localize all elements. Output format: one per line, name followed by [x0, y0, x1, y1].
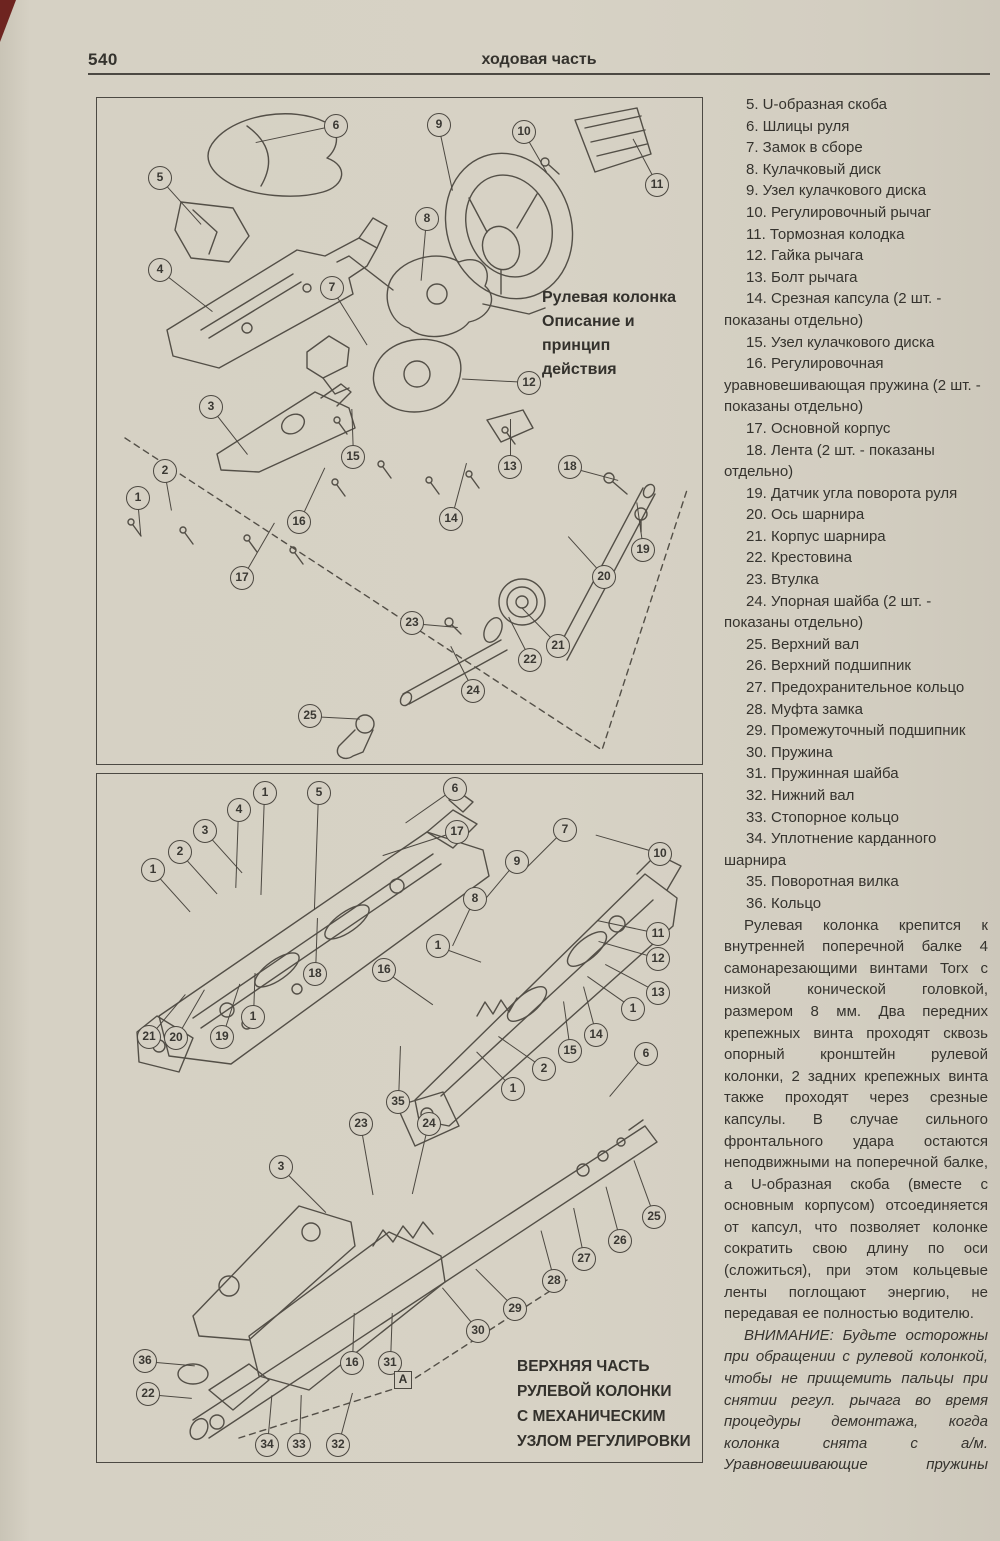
callout-circle: 30 [466, 1319, 490, 1343]
parts-list-item: 36. Кольцо [724, 893, 988, 915]
parts-list-item: 27. Предохранительное кольцо [724, 677, 988, 699]
callout-circle: 26 [608, 1229, 632, 1253]
callout-circle: 10 [512, 120, 536, 144]
parts-list-item: 30. Пружина [724, 742, 988, 764]
diagram1-caption: Рулевая колонка Описание и принцип дейст… [542, 286, 702, 382]
callout-circle: 5 [307, 781, 331, 805]
callout-circle: 20 [164, 1026, 188, 1050]
callout-circle: 22 [518, 648, 542, 672]
callout-circle: 34 [255, 1433, 279, 1457]
callout-circle: 12 [517, 371, 541, 395]
callout-circle: 11 [646, 922, 670, 946]
callout-circle: 2 [168, 840, 192, 864]
callout-circle: 25 [298, 704, 322, 728]
callout-circle: 18 [303, 962, 327, 986]
page-header-title: ходовая часть [88, 51, 990, 69]
parts-list-item: 35. Поворотная вилка [724, 871, 988, 893]
parts-list-item: 6. Шлицы руля [724, 116, 988, 138]
callout-circle: 18 [558, 455, 582, 479]
callout-circle: 8 [415, 207, 439, 231]
callout-circle: 8 [463, 887, 487, 911]
callout-circle: 19 [631, 538, 655, 562]
callout-circle: 23 [349, 1112, 373, 1136]
callout-circle: 6 [634, 1042, 658, 1066]
callout-circle: 14 [584, 1023, 608, 1047]
callout-circle: 27 [572, 1247, 596, 1271]
callout-circle: 13 [646, 981, 670, 1005]
parts-list-item: 5. U-образная скоба [724, 94, 988, 116]
parts-list-item: 16. Регулировочная уравновешивающая пруж… [724, 353, 988, 418]
parts-list-item: 7. Замок в сборе [724, 137, 988, 159]
diagram2-caption-line: УЗЛОМ РЕГУЛИРОВКИ [517, 1429, 691, 1454]
callout-circle: 2 [153, 459, 177, 483]
diagram2-caption-line: РУЛЕВОЙ КОЛОНКИ [517, 1379, 691, 1404]
diagram1-caption-line: Рулевая колонка [542, 286, 702, 310]
diagram1-line-art [97, 98, 701, 763]
callout-circle: 24 [417, 1112, 441, 1136]
callout-circle: 5 [148, 166, 172, 190]
parts-list-item: 11. Тормозная колодка [724, 224, 988, 246]
callout-circle: 3 [199, 395, 223, 419]
scan-corner-artifact [0, 0, 16, 42]
callout-circle: 1 [126, 486, 150, 510]
callout-circle: 25 [642, 1205, 666, 1229]
parts-list-item: 8. Кулачковый диск [724, 159, 988, 181]
callout-circle: 36 [133, 1349, 157, 1373]
section-marker-a: A [394, 1371, 412, 1389]
callout-circle: 1 [241, 1005, 265, 1029]
callout-circle: 16 [340, 1351, 364, 1375]
callout-circle: 9 [427, 113, 451, 137]
parts-list-item: 28. Муфта замка [724, 699, 988, 721]
parts-list-item: 19. Датчик угла поворота руля [724, 483, 988, 505]
parts-list: 5. U-образная скоба6. Шлицы руля7. Замок… [724, 94, 988, 915]
callout-circle: 1 [141, 858, 165, 882]
callout-circle: 7 [320, 276, 344, 300]
callout-circle: 1 [501, 1077, 525, 1101]
parts-list-item: 26. Верхний подшипник [724, 655, 988, 677]
callout-circle: 32 [326, 1433, 350, 1457]
callout-circle: 4 [227, 798, 251, 822]
diagram2-caption-line: С МЕХАНИЧЕСКИМ [517, 1404, 691, 1429]
callout-circle: 7 [553, 818, 577, 842]
parts-list-item: 22. Крестовина [724, 547, 988, 569]
callout-circle: 29 [503, 1297, 527, 1321]
parts-list-item: 17. Основной корпус [724, 418, 988, 440]
callout-circle: 16 [287, 510, 311, 534]
callout-circle: 17 [230, 566, 254, 590]
parts-list-item: 15. Узел кулачкового диска [724, 332, 988, 354]
diagram2-caption-line: ВЕРХНЯЯ ЧАСТЬ [517, 1354, 691, 1379]
parts-list-item: 21. Корпус шарнира [724, 526, 988, 548]
callout-circle: 12 [646, 947, 670, 971]
callout-circle: 1 [426, 934, 450, 958]
callout-circle: 23 [400, 611, 424, 635]
callout-circle: 6 [324, 114, 348, 138]
diagram2-caption: ВЕРХНЯЯ ЧАСТЬ РУЛЕВОЙ КОЛОНКИ С МЕХАНИЧЕ… [517, 1354, 691, 1454]
callout-circle: 28 [542, 1269, 566, 1293]
callout-circle: 20 [592, 565, 616, 589]
diagram-column-upper-part: ВЕРХНЯЯ ЧАСТЬ РУЛЕВОЙ КОЛОНКИ С МЕХАНИЧЕ… [96, 773, 703, 1463]
callout-circle: 21 [137, 1025, 161, 1049]
callout-circle: 1 [253, 781, 277, 805]
parts-list-item: 31. Пружинная шайба [724, 763, 988, 785]
parts-list-item: 25. Верхний вал [724, 634, 988, 656]
callout-circle: 4 [148, 258, 172, 282]
callout-circle: 16 [372, 958, 396, 982]
screw-glyphs [128, 417, 515, 564]
callout-circle: 2 [532, 1057, 556, 1081]
parts-list-item: 18. Лента (2 шт. - показаны отдельно) [724, 440, 988, 483]
callout-circle: 24 [461, 679, 485, 703]
callout-circle: 15 [558, 1039, 582, 1063]
callout-circle: 14 [439, 507, 463, 531]
parts-list-item: 14. Срезная капсула (2 шт. - показаны от… [724, 288, 988, 331]
parts-list-item: 32. Нижний вал [724, 785, 988, 807]
callout-circle: 13 [498, 455, 522, 479]
description-paragraph: Рулевая колонка крепится к внутренней по… [724, 915, 988, 1325]
diagram-steering-column-exploded: Рулевая колонка Описание и принцип дейст… [96, 97, 703, 765]
callout-circle: 21 [546, 634, 570, 658]
diagram1-caption-line: действия [542, 358, 702, 382]
callout-circle: 35 [386, 1090, 410, 1114]
header-rule [88, 73, 990, 75]
parts-list-item: 20. Ось шарнира [724, 504, 988, 526]
parts-list-item: 24. Упорная шайба (2 шт. - показаны отде… [724, 591, 988, 634]
callout-circle: 33 [287, 1433, 311, 1457]
parts-list-item: 29. Промежуточный подшипник [724, 720, 988, 742]
parts-list-item: 9. Узел кулачкового диска [724, 180, 988, 202]
callout-circle: 6 [443, 777, 467, 801]
diagram1-caption-line: Описание и принцип [542, 310, 702, 358]
callout-circle: 19 [210, 1025, 234, 1049]
callout-circle: 1 [621, 997, 645, 1021]
parts-list-item: 34. Уплотнение карданного шарнира [724, 828, 988, 871]
callout-circle: 3 [269, 1155, 293, 1179]
parts-list-item: 12. Гайка рычага [724, 245, 988, 267]
parts-list-item: 33. Стопорное кольцо [724, 807, 988, 829]
callout-circle: 11 [645, 173, 669, 197]
right-text-column: 5. U-образная скоба6. Шлицы руля7. Замок… [724, 94, 988, 1474]
callout-circle: 10 [648, 842, 672, 866]
description-paragraphs: Рулевая колонка крепится к внутренней по… [724, 915, 988, 1474]
callout-circle: 22 [136, 1382, 160, 1406]
description-paragraph: ВНИМАНИЕ: Будьте осторожны при обращении… [724, 1325, 988, 1474]
parts-list-item: 23. Втулка [724, 569, 988, 591]
callout-circle: 17 [445, 820, 469, 844]
callout-circle: 15 [341, 445, 365, 469]
parts-list-item: 10. Регулировочный рычаг [724, 202, 988, 224]
callout-circle: 3 [193, 819, 217, 843]
parts-list-item: 13. Болт рычага [724, 267, 988, 289]
callout-circle: 9 [505, 850, 529, 874]
